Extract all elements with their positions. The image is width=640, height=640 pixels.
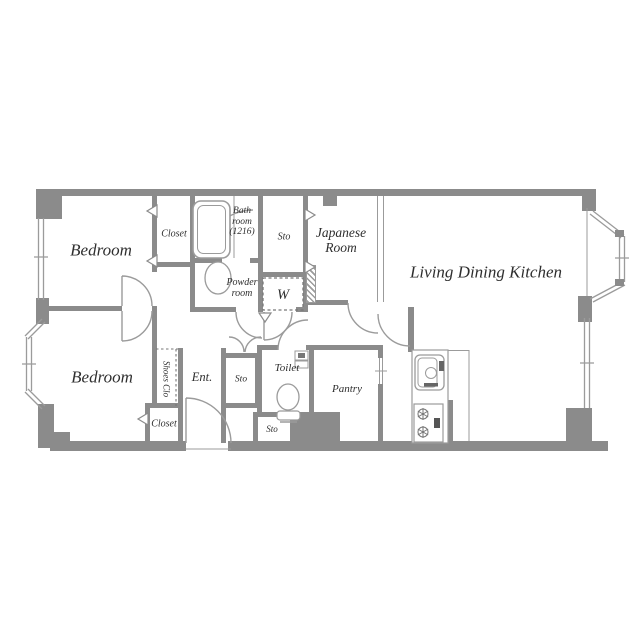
floorplan-linework: [0, 0, 640, 640]
counter-return-line: [448, 350, 469, 441]
bay-nub-bottom: [615, 279, 624, 286]
label-bedroom-top: Bedroom: [70, 240, 132, 259]
floor-plan: Bedroom Closet Bath room (1216) Sto Japa…: [0, 0, 640, 640]
pantry-door: [375, 358, 387, 384]
door-marker-closet-bottom: [138, 413, 148, 425]
label-bedroom-bottom: Bedroom: [71, 367, 133, 386]
label-bathroom: Bath room (1216): [222, 206, 262, 238]
stove-icon: [414, 404, 443, 442]
door-arc-bedroom-bottom: [122, 311, 152, 341]
label-sto-outer: Sto: [266, 424, 278, 434]
bay-nub-top: [615, 230, 624, 237]
door-arc-entrance: [186, 398, 231, 443]
label-sto-top: Sto: [278, 231, 291, 242]
door-marker-closet-top-1: [147, 205, 157, 217]
door-marker-washer: [259, 313, 271, 322]
label-ldk: Living Dining Kitchen: [410, 262, 562, 281]
label-closet-top: Closet: [161, 228, 187, 239]
kitchen-counter: [412, 350, 448, 443]
door-arc-bedroom-top: [122, 276, 152, 306]
door-arc-sto-hall-double: [229, 337, 261, 352]
bay-window-left: [22, 319, 45, 409]
window-right-lower: [580, 318, 594, 408]
door-marker-closet-top-2: [147, 255, 157, 267]
kitchen-sink-icon: [415, 355, 444, 390]
window-left-top: [34, 218, 48, 300]
label-closet-bottom: Closet: [151, 418, 177, 429]
door-arc-toilet: [278, 320, 308, 350]
door-arc-japanese-room: [348, 303, 378, 333]
door-arc-ldk: [378, 314, 410, 346]
label-sto-hall: Sto: [235, 375, 247, 386]
bay-window-right: [587, 208, 629, 302]
label-pantry: Pantry: [332, 383, 362, 395]
label-powder-room: Powder room: [219, 277, 265, 299]
door-arc-powder-room: [236, 312, 262, 338]
door-marker-sto-top-1: [305, 209, 315, 221]
door-marker-sto-top-2: [305, 261, 315, 273]
label-japanese-room: Japanese Room: [308, 225, 374, 255]
label-shoes-closet: Shoes Clo: [162, 361, 171, 397]
label-washer: W: [277, 287, 289, 303]
label-toilet: Toilet: [275, 362, 300, 374]
label-entrance: Ent.: [192, 370, 212, 384]
